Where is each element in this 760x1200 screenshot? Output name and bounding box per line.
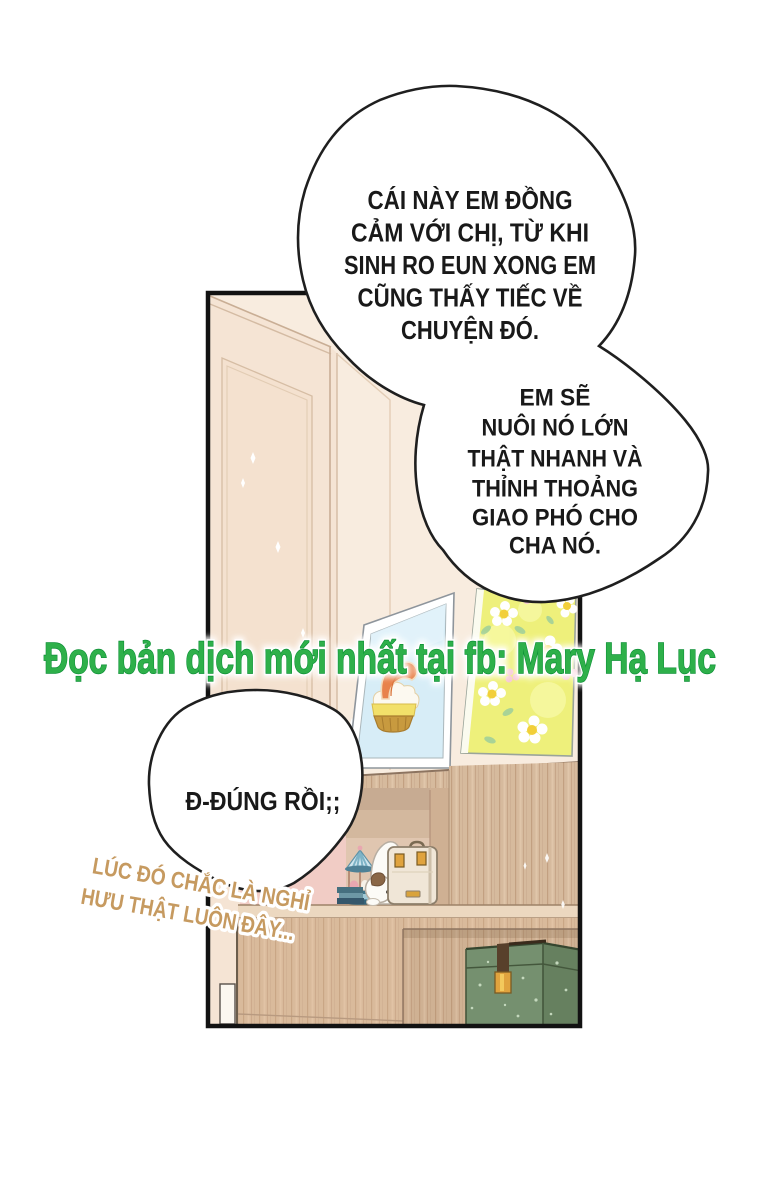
svg-text:THỈNH THOẢNG: THỈNH THOẢNG xyxy=(472,474,638,503)
svg-text:SINH RO EUN XONG EM: SINH RO EUN XONG EM xyxy=(344,250,596,280)
svg-text:EM SẼ: EM SẼ xyxy=(520,384,591,412)
svg-text:CHA NÓ.: CHA NÓ. xyxy=(509,532,601,560)
svg-text:CẢM VỚI CHỊ, TỪ KHI: CẢM VỚI CHỊ, TỪ KHI xyxy=(351,218,589,248)
svg-text:GIAO PHÓ CHO: GIAO PHÓ CHO xyxy=(472,504,638,532)
svg-text:CHUYỆN ĐÓ.: CHUYỆN ĐÓ. xyxy=(401,315,539,345)
svg-text:THẬT NHANH VÀ: THẬT NHANH VÀ xyxy=(468,445,643,473)
svg-text:Đọc bản dịch mới nhất tại fb:: Đọc bản dịch mới nhất tại fb: Mary Hạ Lụ… xyxy=(44,634,716,683)
svg-text:CÁI NÀY EM ĐỒNG: CÁI NÀY EM ĐỒNG xyxy=(368,185,573,215)
svg-text:Đ-ĐÚNG RỒI;;: Đ-ĐÚNG RỒI;; xyxy=(186,786,341,816)
svg-text:CŨNG THẤY TIẾC VỀ: CŨNG THẤY TIẾC VỀ xyxy=(358,283,583,313)
svg-text:NUÔI NÓ LỚN: NUÔI NÓ LỚN xyxy=(482,414,629,442)
